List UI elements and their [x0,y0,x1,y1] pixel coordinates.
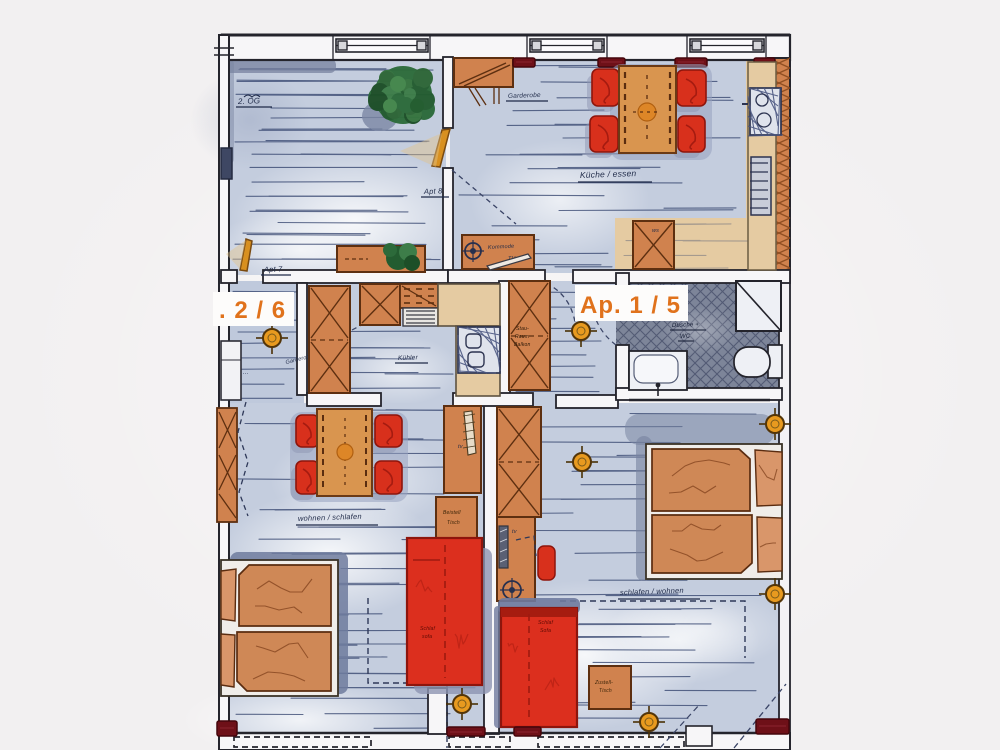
svg-text:. 2 / 6: . 2 / 6 [219,297,286,324]
svg-text:...: ... [243,370,249,376]
svg-text:Raum: Raum [515,334,529,340]
svg-text:Stau-: Stau- [516,326,529,332]
svg-text:Schlaf: Schlaf [420,626,436,632]
svg-text:Apt 8: Apt 8 [423,186,443,196]
svg-text:Balkon: Balkon [514,342,531,348]
svg-text:Tisch: Tisch [447,520,460,526]
svg-text:Beistell: Beistell [443,510,461,516]
svg-text:Schlaf: Schlaf [538,620,554,626]
svg-text:Küche / essen: Küche / essen [580,168,637,180]
svg-text:Sofa: Sofa [540,628,551,634]
svg-text:ws: ws [652,228,659,234]
svg-text:Tisch: Tisch [599,688,612,694]
svg-text:2. OG: 2. OG [237,96,261,106]
svg-text:sofa: sofa [422,634,432,640]
svg-text:Ap. 1 / 5: Ap. 1 / 5 [580,292,681,319]
svg-text:WC: WC [680,334,691,340]
svg-text:Dusche +: Dusche + [672,322,700,329]
svg-text:Apt 7: Apt 7 [263,264,283,274]
svg-text:Garderobe: Garderobe [508,92,541,100]
svg-text:Kühler: Kühler [398,354,419,362]
svg-text:Zustell-: Zustell- [594,680,613,686]
